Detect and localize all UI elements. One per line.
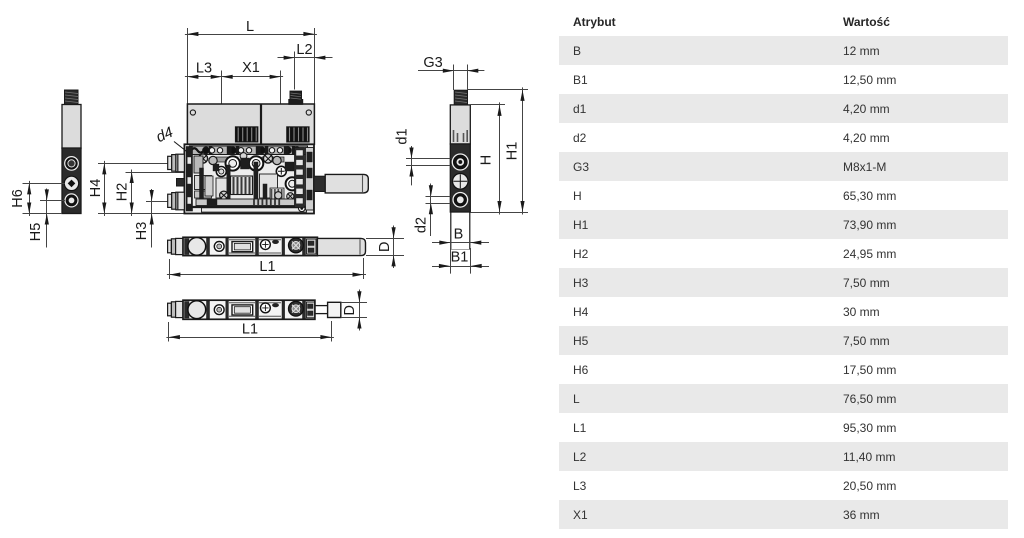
svg-text:H2: H2: [114, 183, 130, 202]
svg-text:B1: B1: [451, 250, 469, 266]
svg-text:B: B: [454, 227, 464, 243]
svg-text:H: H: [479, 155, 495, 165]
svg-text:H5: H5: [28, 223, 44, 242]
svg-text:X1: X1: [242, 60, 260, 76]
svg-text:H1: H1: [505, 142, 521, 161]
svg-text:L3: L3: [196, 61, 212, 77]
svg-text:d4: d4: [154, 124, 176, 146]
svg-text:L1: L1: [259, 259, 275, 275]
svg-text:H3: H3: [134, 222, 150, 241]
svg-text:D: D: [342, 305, 358, 315]
svg-text:D: D: [377, 242, 393, 252]
svg-text:L2: L2: [296, 42, 312, 58]
svg-text:d1: d1: [395, 128, 411, 144]
svg-text:d2: d2: [413, 217, 429, 233]
svg-text:H6: H6: [10, 189, 26, 208]
svg-text:G3: G3: [423, 55, 442, 71]
svg-text:H4: H4: [88, 179, 104, 198]
svg-text:L1: L1: [242, 322, 258, 338]
svg-text:L: L: [246, 19, 254, 35]
